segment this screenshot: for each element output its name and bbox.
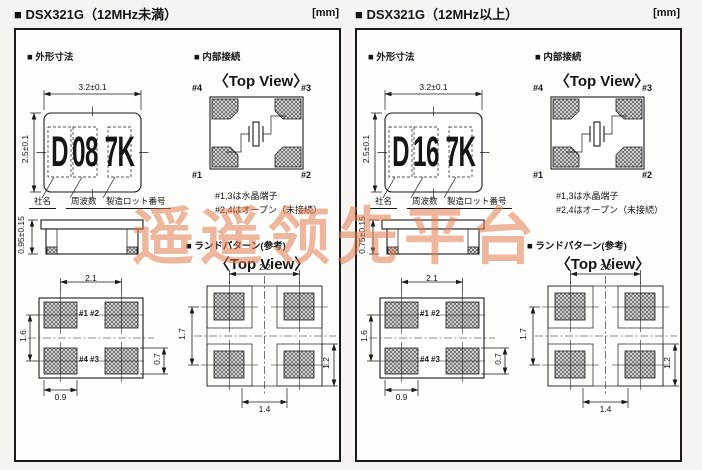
dim-height: 2.5±0.1 [361,114,371,184]
dim-pad-pitch-y: 1.6 [18,311,28,361]
pad-label-3: #3 [431,355,440,364]
dim-land-span-y: 1.2 [662,338,672,388]
internal-section-title: ■ 内部接続 [194,49,240,63]
pin-2: #2 [301,170,311,180]
dim-land-width: 2.2 [571,262,641,272]
dim-land-span-x: 1.4 [583,404,628,414]
marking-frequency: 08 [78,127,91,177]
internal-section-title: ■ 内部接続 [535,49,581,63]
pad-label-3: #3 [90,355,99,364]
marking-company: D [53,127,66,177]
dim-pad-width: 0.9 [44,392,77,402]
pad-label-2: #2 [431,309,440,318]
dim-pad-width: 0.9 [385,392,418,402]
marking-lot: 7K [454,127,467,177]
unit-label: [mm] [312,7,341,19]
pin-1: #1 [192,170,202,180]
panel-title: ■ DSX321G（12MHz未満） [14,4,177,23]
marking-lot: 7K [113,127,126,177]
dim-width: 3.2±0.1 [44,82,141,92]
watermark: 遥遥领先平台 [132,186,540,276]
pad-label-1: #1 [420,309,429,318]
dim-land-span-y: 1.2 [321,338,331,388]
land-section-title: ■ ランドパターン(参考) [527,238,627,252]
label-company: 社名 [29,195,56,209]
dim-land-span-x: 1.4 [242,404,287,414]
marking-frequency: 16 [419,127,432,177]
top-view-label: 〈Top View〉 [547,70,657,91]
dim-height: 2.5±0.1 [20,114,30,184]
pin-3: #3 [301,83,311,93]
pin-1: #1 [533,170,543,180]
panel-header-right: ■ DSX321G（12MHz以上） [mm] [355,4,682,22]
pad-label-4: #4 [420,355,429,364]
outline-section-title: ■ 外形寸法 [27,49,73,63]
pin-2: #2 [642,170,652,180]
top-view-label: 〈Top View〉 [206,70,316,91]
panel-header-left: ■ DSX321G（12MHz未満） [mm] [14,4,341,22]
internal-note-1: #1,3は水晶端子 [556,189,619,202]
pad-label-4: #4 [79,355,88,364]
dim-land-height: 1.7 [518,309,528,359]
outline-section-title: ■ 外形寸法 [368,49,414,63]
internal-note-2: #2,4はオープン（未接続） [556,203,663,216]
dim-pad-pitch-x: 2.1 [59,273,123,283]
pin-4: #4 [192,83,202,93]
dim-land-height: 1.7 [177,309,187,359]
dim-pad-pitch-y: 1.6 [359,311,369,361]
pad-label-1: #1 [79,309,88,318]
pin-4: #4 [533,83,543,93]
unit-label: [mm] [653,7,682,19]
dim-pad-height: 0.7 [493,334,503,384]
dim-thickness: 0.95±0.15 [16,195,26,275]
marking-company: D [394,127,407,177]
panel-title: ■ DSX321G（12MHz以上） [355,4,518,23]
dim-width: 3.2±0.1 [385,82,482,92]
dim-pad-height: 0.7 [152,334,162,384]
label-frequency: 周波数 [66,195,102,209]
pin-3: #3 [642,83,652,93]
pad-label-2: #2 [90,309,99,318]
